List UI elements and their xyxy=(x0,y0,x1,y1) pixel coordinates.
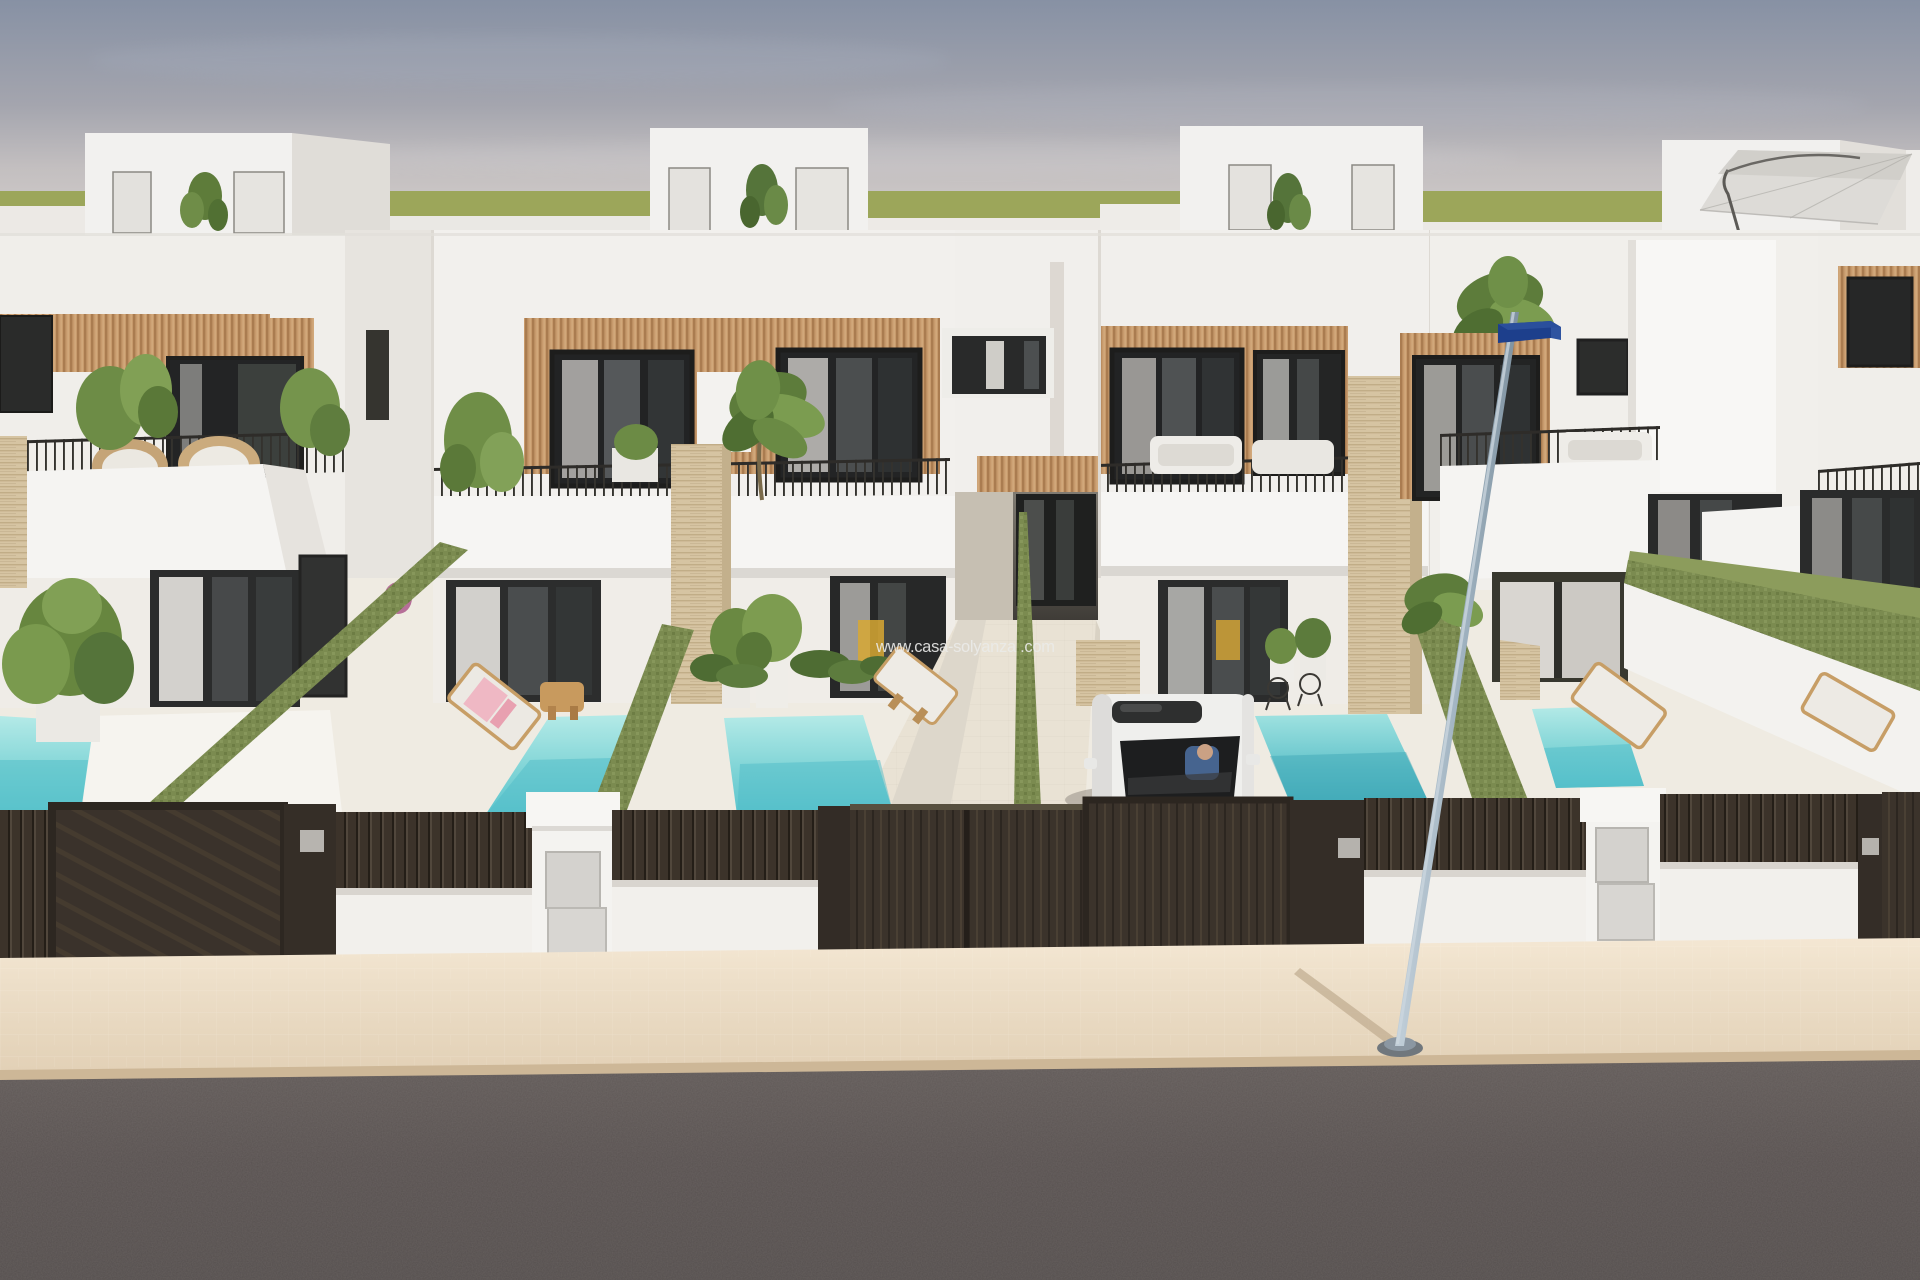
svg-text:www.casa-solyanza .com: www.casa-solyanza .com xyxy=(875,638,1055,656)
